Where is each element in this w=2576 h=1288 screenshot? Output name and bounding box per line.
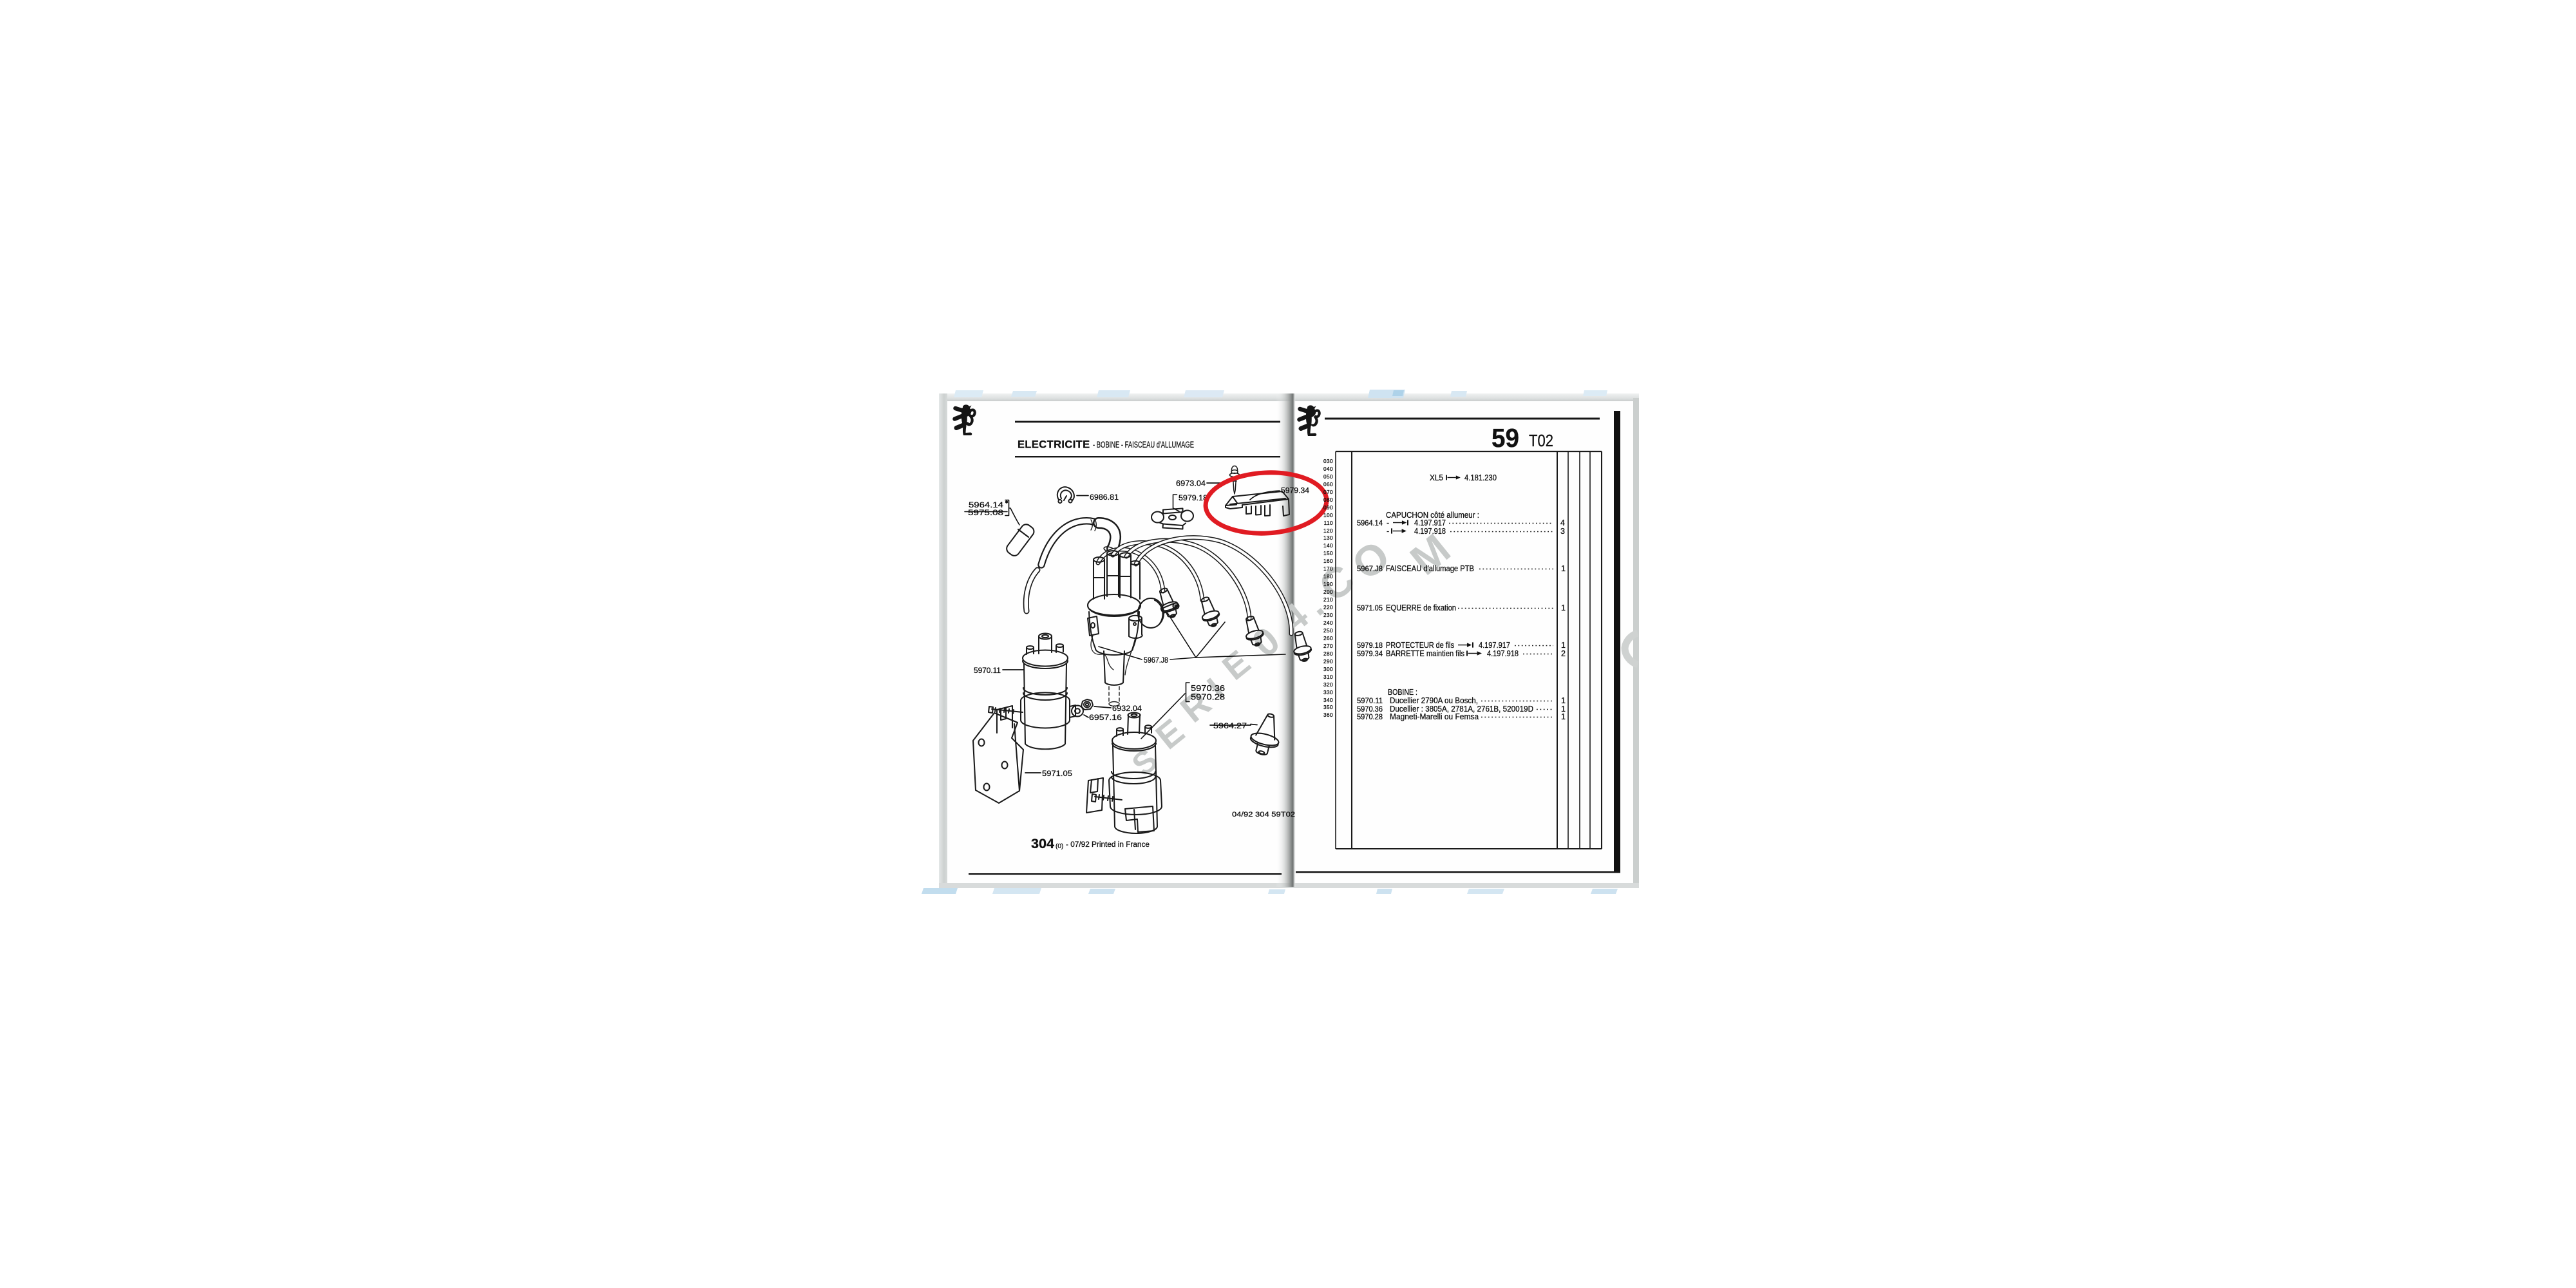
svg-text:290: 290: [1323, 658, 1333, 665]
svg-text:320: 320: [1323, 681, 1333, 688]
svg-text:130: 130: [1323, 535, 1333, 541]
svg-text:060: 060: [1323, 481, 1333, 488]
svg-text:050: 050: [1323, 473, 1333, 480]
svg-text:6986.81: 6986.81: [1090, 493, 1119, 502]
svg-text:110: 110: [1324, 520, 1333, 526]
svg-text:1: 1: [1561, 696, 1566, 705]
svg-text:340: 340: [1323, 697, 1333, 703]
svg-text:4: 4: [1560, 518, 1565, 527]
svg-text:080: 080: [1323, 497, 1333, 503]
svg-text:1: 1: [1561, 641, 1566, 650]
svg-text:6957.16: 6957.16: [1089, 713, 1122, 722]
svg-text:5970.36: 5970.36: [1357, 706, 1383, 714]
svg-text:4.197.918: 4.197.918: [1487, 649, 1519, 658]
svg-text:260: 260: [1323, 635, 1333, 641]
svg-text:030: 030: [1323, 458, 1333, 464]
svg-text:250: 250: [1323, 627, 1333, 634]
svg-text:300: 300: [1323, 666, 1333, 672]
svg-text:240: 240: [1323, 620, 1333, 626]
svg-text:3: 3: [1560, 527, 1565, 536]
svg-text:XL5: XL5: [1430, 473, 1443, 482]
svg-text:350: 350: [1323, 704, 1333, 710]
svg-text:1: 1: [1561, 603, 1566, 612]
svg-text:ELECTRICITE: ELECTRICITE: [1018, 439, 1090, 451]
svg-text:5970.11: 5970.11: [974, 666, 1001, 675]
svg-text:5979.18: 5979.18: [1357, 642, 1383, 650]
svg-text:- 07/92 Printed in France: - 07/92 Printed in France: [1066, 841, 1150, 849]
svg-text:1: 1: [1561, 712, 1566, 721]
svg-text:140: 140: [1323, 542, 1333, 549]
svg-text:6973.04: 6973.04: [1176, 479, 1206, 488]
svg-text:BOBINE :: BOBINE :: [1388, 688, 1417, 697]
svg-text:270: 270: [1323, 643, 1333, 649]
svg-text:- BOBINE - FAISCEAU d'ALLUMAGE: - BOBINE - FAISCEAU d'ALLUMAGE: [1093, 440, 1194, 450]
svg-text:BARRETTE maintien fils: BARRETTE maintien fils: [1386, 649, 1464, 658]
svg-text:120: 120: [1323, 527, 1333, 534]
svg-text:190: 190: [1323, 581, 1333, 587]
svg-text:Magneti-Marelli ou Femsa: Magneti-Marelli ou Femsa: [1390, 712, 1479, 721]
svg-text:5971.05: 5971.05: [1042, 769, 1072, 778]
svg-text:330: 330: [1323, 689, 1333, 696]
svg-text:FAISCEAU d'allumage PTB: FAISCEAU d'allumage PTB: [1386, 564, 1474, 573]
svg-text:170: 170: [1323, 565, 1333, 572]
svg-text:180: 180: [1323, 573, 1333, 580]
svg-text:-: -: [1387, 527, 1389, 536]
svg-text:PROTECTEUR de fils: PROTECTEUR de fils: [1386, 641, 1454, 650]
svg-text:150: 150: [1323, 550, 1333, 556]
svg-text:(0): (0): [1056, 843, 1063, 850]
svg-text:Ducellier 2790A ou Bosch,: Ducellier 2790A ou Bosch,: [1390, 696, 1478, 705]
svg-text:090: 090: [1323, 504, 1333, 511]
svg-text:04/92 304 59T02: 04/92 304 59T02: [1232, 811, 1295, 819]
svg-text:EQUERRE de fixation: EQUERRE de fixation: [1386, 603, 1456, 612]
svg-text:160: 160: [1323, 558, 1333, 564]
svg-text:5964.27: 5964.27: [1213, 721, 1247, 730]
svg-text:6932.04: 6932.04: [1112, 704, 1142, 713]
svg-text:2: 2: [1561, 649, 1566, 658]
svg-text:5967.J8: 5967.J8: [1144, 656, 1168, 665]
svg-text:4.197.917: 4.197.917: [1414, 518, 1446, 527]
svg-text:360: 360: [1323, 712, 1333, 718]
svg-text:5971.05: 5971.05: [1357, 605, 1383, 612]
svg-text:T02: T02: [1529, 431, 1553, 450]
svg-text:5970.11: 5970.11: [1357, 697, 1383, 705]
svg-text:040: 040: [1323, 466, 1333, 472]
svg-text:200: 200: [1323, 589, 1333, 595]
svg-text:5964.14: 5964.14: [1357, 520, 1383, 527]
svg-text:1: 1: [1561, 564, 1566, 573]
svg-text:210: 210: [1323, 596, 1333, 603]
svg-text:5975.08: 5975.08: [968, 508, 1003, 517]
svg-text:070: 070: [1323, 489, 1333, 495]
svg-text:5967.J8: 5967.J8: [1357, 565, 1383, 573]
svg-text:4.197.918: 4.197.918: [1414, 527, 1446, 536]
svg-text:5979.34: 5979.34: [1357, 650, 1383, 658]
svg-text:280: 280: [1323, 650, 1333, 657]
svg-text:5970.36: 5970.36: [1191, 684, 1225, 693]
svg-text:230: 230: [1323, 612, 1333, 618]
svg-text:304: 304: [1031, 837, 1054, 851]
svg-text:4.181.230: 4.181.230: [1464, 473, 1497, 482]
svg-text:5979.34: 5979.34: [1281, 486, 1309, 495]
svg-text:220: 220: [1323, 604, 1333, 611]
svg-text:59: 59: [1492, 423, 1519, 453]
svg-text:5970.28: 5970.28: [1357, 714, 1383, 721]
svg-text:100: 100: [1323, 512, 1333, 518]
svg-text:4.197.917: 4.197.917: [1479, 641, 1510, 650]
svg-text:5979.18: 5979.18: [1179, 493, 1207, 502]
svg-text:310: 310: [1323, 674, 1333, 680]
svg-text:5970.28: 5970.28: [1191, 693, 1225, 702]
svg-text:-: -: [1387, 518, 1389, 527]
